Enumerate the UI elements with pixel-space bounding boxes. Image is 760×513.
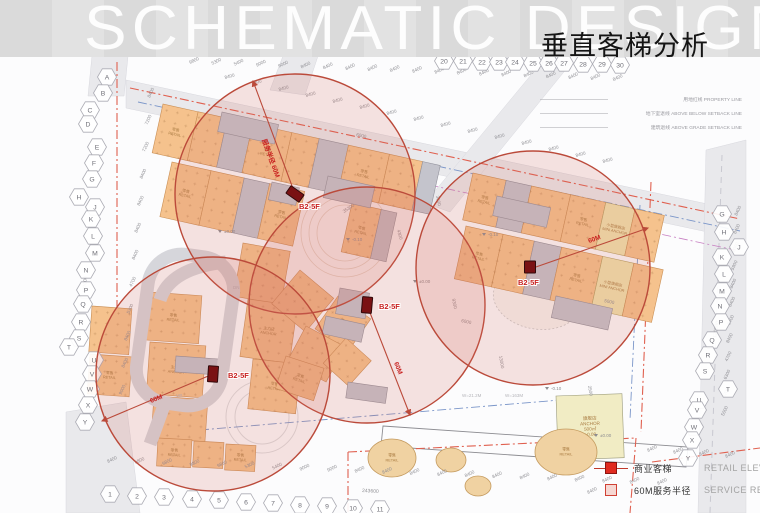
elevator-label: B2-5F xyxy=(228,371,249,380)
svg-text:W=21.2M: W=21.2M xyxy=(462,393,482,398)
svg-text:8400: 8400 xyxy=(575,150,587,158)
svg-text:V: V xyxy=(695,407,700,414)
svg-text:用地红线 PROPERTY LINE: 用地红线 PROPERTY LINE xyxy=(683,96,742,103)
svg-text:8400: 8400 xyxy=(224,72,236,80)
svg-text:8400: 8400 xyxy=(567,71,579,80)
retail-pad xyxy=(436,448,466,472)
svg-text:8400: 8400 xyxy=(548,144,560,152)
svg-text:建筑退线 ABOVE GRADE SETBACK LINE: 建筑退线 ABOVE GRADE SETBACK LINE xyxy=(651,124,742,131)
svg-text:8400: 8400 xyxy=(602,156,614,164)
svg-text:7200: 7200 xyxy=(144,114,153,126)
svg-text:C: C xyxy=(88,107,93,114)
svg-text:S: S xyxy=(77,335,82,342)
svg-text:8: 8 xyxy=(298,502,302,509)
svg-text:8400: 8400 xyxy=(136,195,145,207)
svg-text:8400: 8400 xyxy=(612,73,624,82)
svg-text:P: P xyxy=(84,287,89,294)
svg-text:W=163M: W=163M xyxy=(505,393,523,398)
svg-text:9000: 9000 xyxy=(326,464,338,473)
svg-text:Q: Q xyxy=(80,301,85,308)
svg-text:R: R xyxy=(706,352,711,359)
svg-text:8400: 8400 xyxy=(133,222,142,234)
legend: 商业客梯 RETAIL ELEVATOR 60M服务半径 SERVICE RED… xyxy=(594,461,760,505)
svg-text:E: E xyxy=(95,144,100,151)
svg-text:8400: 8400 xyxy=(467,126,479,134)
svg-text:T: T xyxy=(726,386,730,393)
elevator-marker xyxy=(361,297,372,314)
elevator-label: B2-5F xyxy=(379,302,400,311)
legend-label-en: SERVICE REDIUS xyxy=(704,485,760,495)
svg-text:G: G xyxy=(89,176,94,183)
svg-text:M: M xyxy=(92,250,98,257)
svg-text:8400: 8400 xyxy=(386,108,398,116)
legend-item-retail-elevator: 商业客梯 RETAIL ELEVATOR xyxy=(594,461,760,475)
site-plan-svg: 零售RETAIL零售RETAIL零售RETAIL零售RETAIL零售RETAIL… xyxy=(0,0,760,513)
boundary-labels: 用地红线 PROPERTY LINE地下室退线 ABOVE BELOW SETB… xyxy=(540,96,742,131)
svg-text:5: 5 xyxy=(217,497,221,504)
svg-text:H: H xyxy=(77,194,82,201)
svg-text:6: 6 xyxy=(244,499,248,506)
page-title: 垂直客梯分析 xyxy=(541,24,709,63)
svg-text:11: 11 xyxy=(376,506,383,513)
svg-text:N: N xyxy=(718,303,723,310)
svg-text:8400: 8400 xyxy=(521,138,533,146)
svg-text:L: L xyxy=(722,271,726,278)
svg-text:J: J xyxy=(93,204,96,211)
svg-text:8400: 8400 xyxy=(413,114,425,122)
legend-item-service-radius: 60M服务半径 SERVICE REDIUS xyxy=(594,483,760,497)
svg-text:7: 7 xyxy=(271,500,275,507)
elevator-marker xyxy=(525,261,536,273)
svg-text:8400: 8400 xyxy=(131,249,140,261)
svg-text:X: X xyxy=(86,402,91,409)
svg-text:10: 10 xyxy=(349,505,357,512)
svg-text:8400: 8400 xyxy=(440,120,452,128)
svg-text:8400: 8400 xyxy=(139,168,148,180)
elevator-label: B2-5F xyxy=(518,278,539,287)
svg-text:8400: 8400 xyxy=(389,64,401,73)
svg-text:J: J xyxy=(737,244,740,251)
legend-label-en: RETAIL ELEVATOR xyxy=(704,463,760,473)
svg-text:Y: Y xyxy=(83,419,88,426)
svg-text:7200: 7200 xyxy=(141,141,150,153)
svg-text:S: S xyxy=(703,368,708,375)
svg-text:W: W xyxy=(691,424,698,431)
svg-text:M: M xyxy=(719,288,725,295)
svg-text:V: V xyxy=(90,371,95,378)
svg-text:G: G xyxy=(719,211,724,218)
svg-text:N: N xyxy=(84,267,89,274)
svg-text:243600: 243600 xyxy=(362,488,379,495)
svg-text:T: T xyxy=(67,344,71,351)
svg-text:D: D xyxy=(86,121,91,128)
svg-text:B: B xyxy=(101,90,106,97)
svg-text:8400: 8400 xyxy=(411,65,423,74)
svg-text:8400: 8400 xyxy=(367,63,379,72)
svg-text:P: P xyxy=(719,319,724,326)
svg-text:±0.00: ±0.00 xyxy=(600,433,612,438)
svg-text:H: H xyxy=(722,229,727,236)
svg-text:-0.10: -0.10 xyxy=(551,386,562,391)
retail-elevator-symbol xyxy=(594,462,628,474)
svg-text:8400: 8400 xyxy=(574,474,586,483)
svg-text:K: K xyxy=(720,254,725,261)
svg-text:8400: 8400 xyxy=(519,471,531,480)
svg-text:8400: 8400 xyxy=(491,470,503,479)
svg-text:4: 4 xyxy=(190,496,194,503)
svg-text:A: A xyxy=(105,74,110,81)
svg-text:3: 3 xyxy=(162,494,166,501)
svg-text:地下室退线 ABOVE BELOW SETBACK LIN: 地下室退线 ABOVE BELOW SETBACK LINE xyxy=(646,110,742,117)
svg-text:9000: 9000 xyxy=(299,463,311,472)
svg-text:L: L xyxy=(91,233,95,240)
retail-pad xyxy=(465,476,491,496)
svg-text:R: R xyxy=(79,319,84,326)
service-radius-symbol xyxy=(594,484,628,496)
svg-text:Q: Q xyxy=(709,337,714,344)
svg-text:1: 1 xyxy=(108,491,112,498)
svg-text:9: 9 xyxy=(325,503,329,510)
svg-text:8400: 8400 xyxy=(590,72,602,81)
svg-text:X: X xyxy=(690,437,695,444)
svg-text:W: W xyxy=(87,386,94,393)
elevator-marker xyxy=(207,366,218,383)
svg-text:F: F xyxy=(92,160,96,167)
elevator-label: B2-5F xyxy=(299,202,320,211)
svg-text:K: K xyxy=(89,216,94,223)
svg-text:2: 2 xyxy=(135,493,139,500)
svg-text:8400: 8400 xyxy=(354,465,366,474)
legend-label-zh: 60M服务半径 xyxy=(634,484,698,497)
legend-label-zh: 商业客梯 xyxy=(634,462,698,475)
schematic-design-sheet: 零售RETAIL零售RETAIL零售RETAIL零售RETAIL零售RETAIL… xyxy=(0,0,760,513)
